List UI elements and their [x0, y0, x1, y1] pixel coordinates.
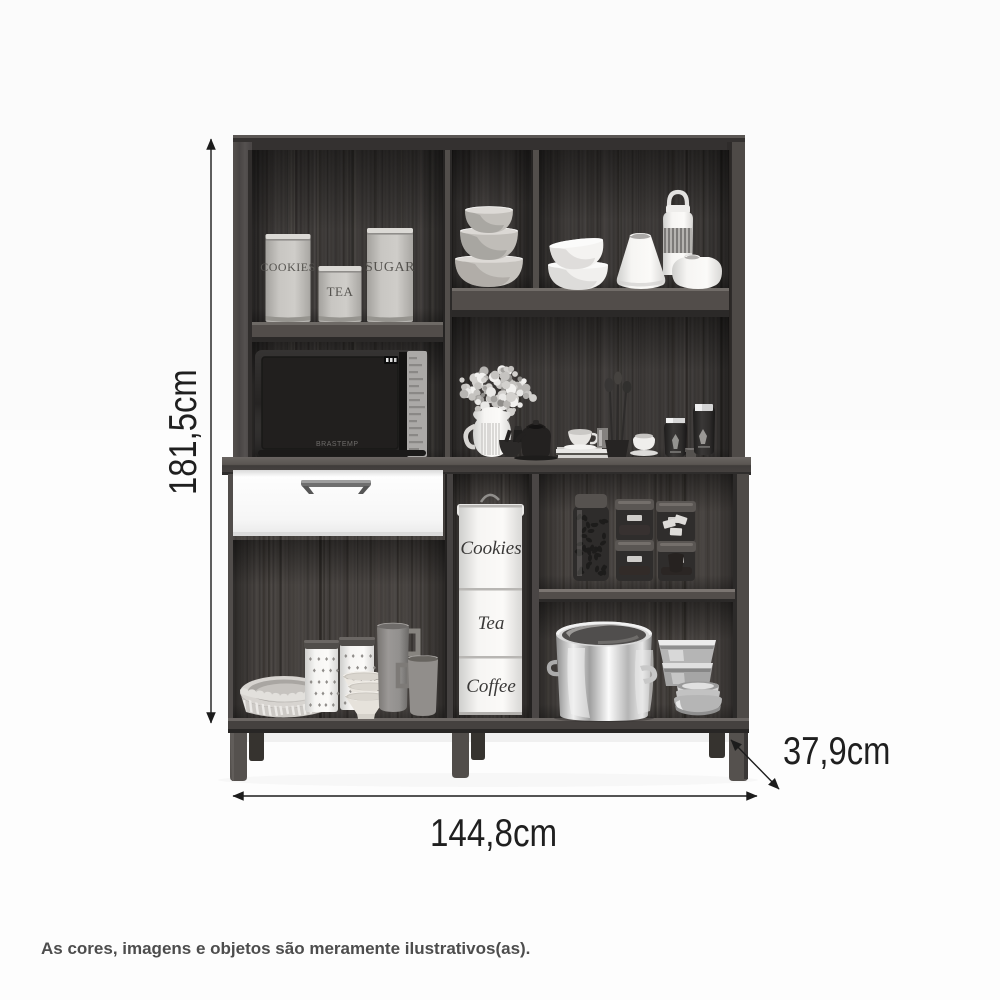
- svg-text:181,5cm: 181,5cm: [160, 369, 204, 495]
- svg-text:COOKIES: COOKIES: [260, 260, 316, 274]
- svg-text:Coffee: Coffee: [466, 676, 516, 697]
- svg-text:TEA: TEA: [327, 284, 354, 299]
- svg-text:SUGAR: SUGAR: [365, 260, 415, 275]
- svg-text:Cookies: Cookies: [460, 538, 521, 559]
- svg-text:As cores, imagens e objetos sã: As cores, imagens e objetos são merament…: [41, 939, 530, 958]
- svg-text:Tea: Tea: [478, 613, 505, 634]
- svg-text:144,8cm: 144,8cm: [430, 810, 557, 854]
- svg-text:37,9cm: 37,9cm: [783, 728, 890, 772]
- svg-text:BRASTEMP: BRASTEMP: [316, 441, 359, 448]
